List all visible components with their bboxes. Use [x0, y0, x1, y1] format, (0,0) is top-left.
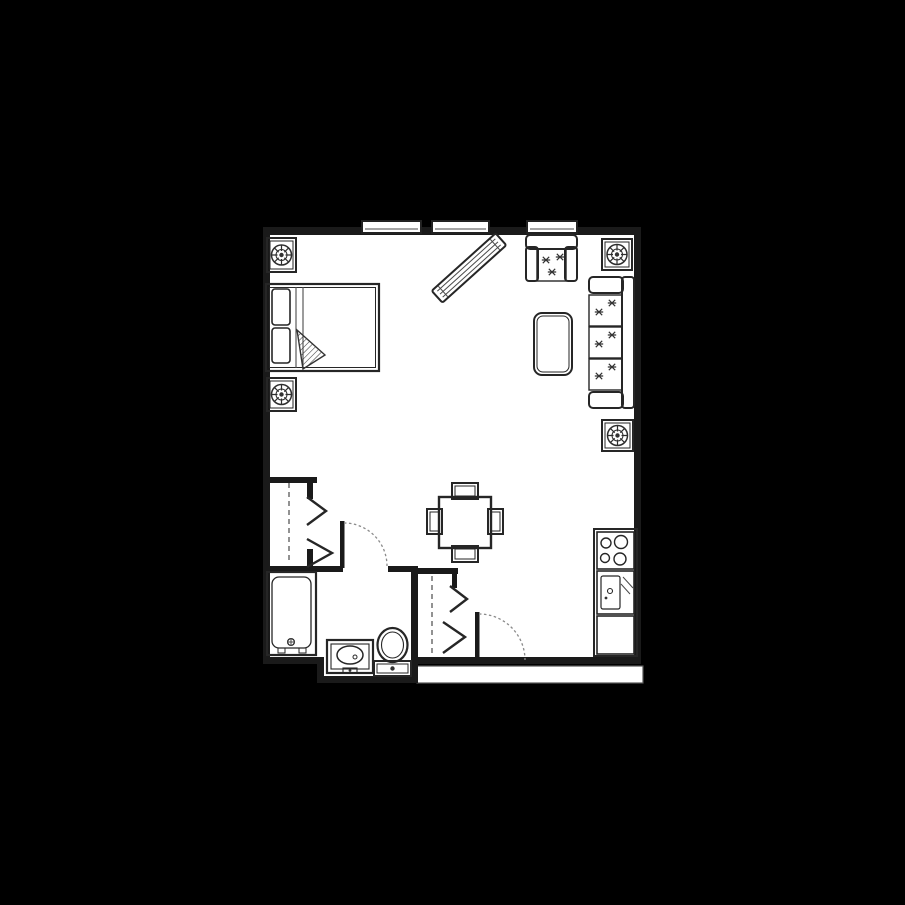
floor-plan-drawing: Entry landing Window Win [0, 0, 905, 905]
entry-landing: Entry landing [417, 666, 643, 683]
window-1: Window [362, 221, 421, 233]
door-leaf [475, 612, 480, 660]
floor-plan-canvas: Entry landing Window Win [0, 0, 905, 905]
wall-bottom-right [415, 657, 641, 664]
wall-closet-right-upper [307, 477, 313, 499]
wall-entry-closet-stub [452, 568, 457, 588]
door-leaf [340, 521, 345, 568]
wall-bump-bottom [317, 676, 418, 683]
flush-button [390, 666, 394, 670]
windows: Window Window Window [362, 221, 577, 233]
window-3: Window [527, 221, 577, 233]
wall-entry-divider [411, 566, 418, 683]
window-2: Window [432, 221, 489, 233]
wall-bottom-left [263, 657, 318, 664]
faucet-dot [349, 669, 352, 672]
